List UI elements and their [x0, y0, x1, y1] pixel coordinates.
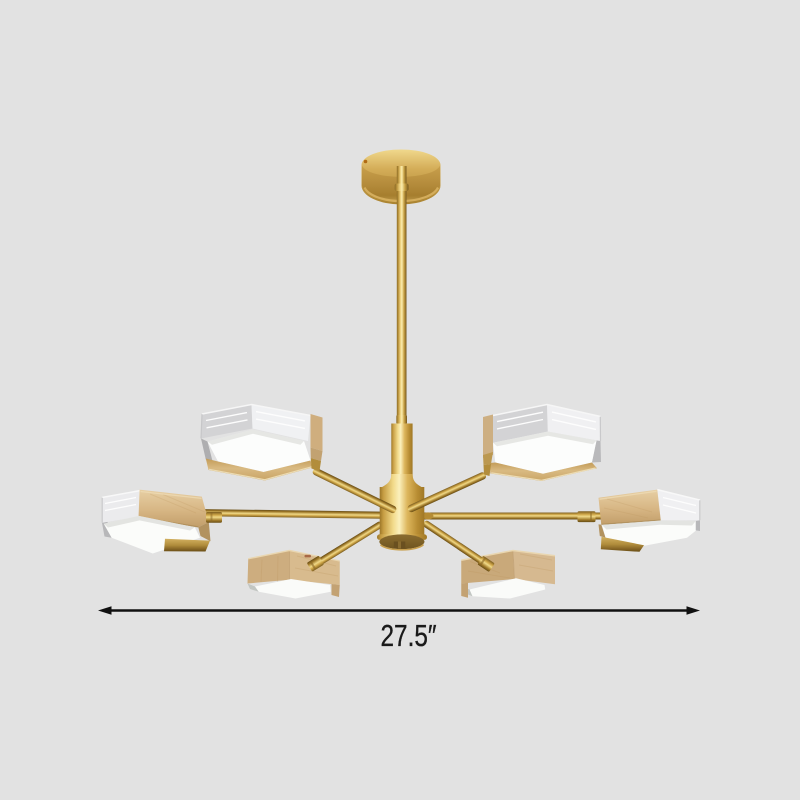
svg-text:27.5″: 27.5″: [381, 619, 437, 653]
